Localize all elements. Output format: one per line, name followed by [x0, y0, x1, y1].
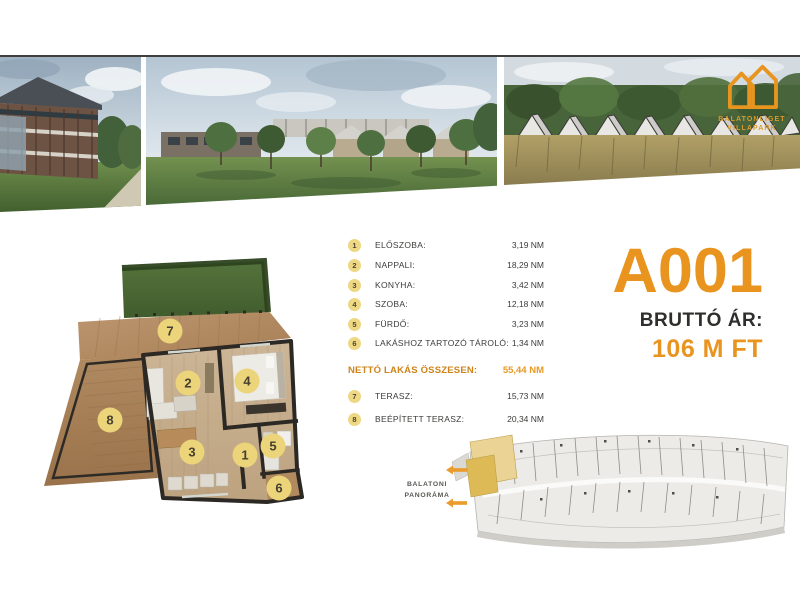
left-arrow-icon [446, 466, 467, 508]
floor-plan: 7 2 4 8 3 1 5 6 [25, 236, 325, 521]
site-plan: BALATONI PANORÁMA [390, 425, 800, 550]
room-area: 3,42 NM [512, 280, 544, 290]
brand-name-line2: VILLAPARK [702, 124, 800, 133]
room-row: 7 TERASZ: 15,73 NM [348, 389, 544, 403]
panorama-caption-line1: BALATONI [407, 481, 447, 488]
net-total-row: NETTÓ LAKÁS ÖSSZESEN: 55,44 NM [348, 362, 544, 378]
room-number-badge: 7 [348, 390, 361, 403]
room-row: 8 BEÉPÍTETT TERASZ: 20,34 NM [348, 412, 544, 426]
room-row: 5 FÜRDŐ: 3,23 NM [348, 317, 544, 331]
svg-text:1: 1 [241, 448, 248, 463]
room-label: FÜRDŐ: [375, 319, 409, 329]
unit-code: A001 [612, 243, 763, 299]
room-area: 15,73 NM [507, 391, 544, 401]
room-row: 6 LAKÁSHOZ TARTOZÓ TÁROLÓ: 1,34 NM [348, 336, 544, 350]
room-label: ELŐSZOBA: [375, 240, 426, 250]
room-number-badge: 3 [348, 279, 361, 292]
room-row: 4 SZOBA: 12,18 NM [348, 297, 544, 311]
room-number-badge: 8 [348, 413, 361, 426]
gross-price-value: 106 M FT [612, 335, 763, 364]
room-area: 3,23 NM [512, 319, 544, 329]
room-row: 2 NAPPALI: 18,29 NM [348, 258, 544, 272]
room-label: SZOBA: [375, 299, 408, 309]
svg-text:6: 6 [275, 481, 282, 496]
room-label: LAKÁSHOZ TARTOZÓ TÁROLÓ: [375, 338, 509, 348]
net-total-value: 55,44 NM [503, 365, 544, 376]
svg-text:5: 5 [269, 439, 276, 454]
pricing-block: A001 BRUTTÓ ÁR: 106 M FT [612, 243, 763, 364]
room-area: 18,29 NM [507, 260, 544, 270]
photo-building-exterior [0, 57, 141, 212]
photo-park-view [146, 57, 497, 205]
room-label: KONYHA: [375, 280, 415, 290]
brochure-page: BALATONLIGET VILLAPARK [0, 0, 800, 600]
gross-price-label: BRUTTÓ ÁR: [612, 310, 763, 332]
top-divider-line [0, 55, 800, 57]
svg-text:8: 8 [106, 413, 113, 428]
room-number-badge: 6 [348, 337, 361, 350]
room-area: 20,34 NM [507, 414, 544, 424]
room-number-badge: 2 [348, 259, 361, 272]
svg-text:7: 7 [166, 324, 173, 339]
room-area: 3,19 NM [512, 240, 544, 250]
brand-logo: BALATONLIGET VILLAPARK [702, 62, 800, 133]
room-area: 1,34 NM [512, 338, 544, 348]
svg-text:2: 2 [184, 376, 191, 391]
svg-text:4: 4 [243, 374, 251, 389]
room-label: NAPPALI: [375, 260, 415, 270]
house-logo-icon [723, 62, 781, 110]
room-area: 12,18 NM [507, 299, 544, 309]
room-row: 3 KONYHA: 3,42 NM [348, 278, 544, 292]
svg-text:3: 3 [188, 445, 195, 460]
room-label: TERASZ: [375, 391, 413, 401]
room-row: 1 ELŐSZOBA: 3,19 NM [348, 238, 544, 252]
panorama-caption-line2: PANORÁMA [404, 490, 449, 499]
room-label: BEÉPÍTETT TERASZ: [375, 414, 464, 424]
highlighted-unit-lower [466, 455, 498, 497]
net-total-label: NETTÓ LAKÁS ÖSSZESEN: [348, 365, 477, 376]
brand-name-line1: BALATONLIGET [702, 115, 800, 124]
room-number-badge: 4 [348, 298, 361, 311]
room-number-badge: 1 [348, 239, 361, 252]
room-number-badge: 5 [348, 318, 361, 331]
